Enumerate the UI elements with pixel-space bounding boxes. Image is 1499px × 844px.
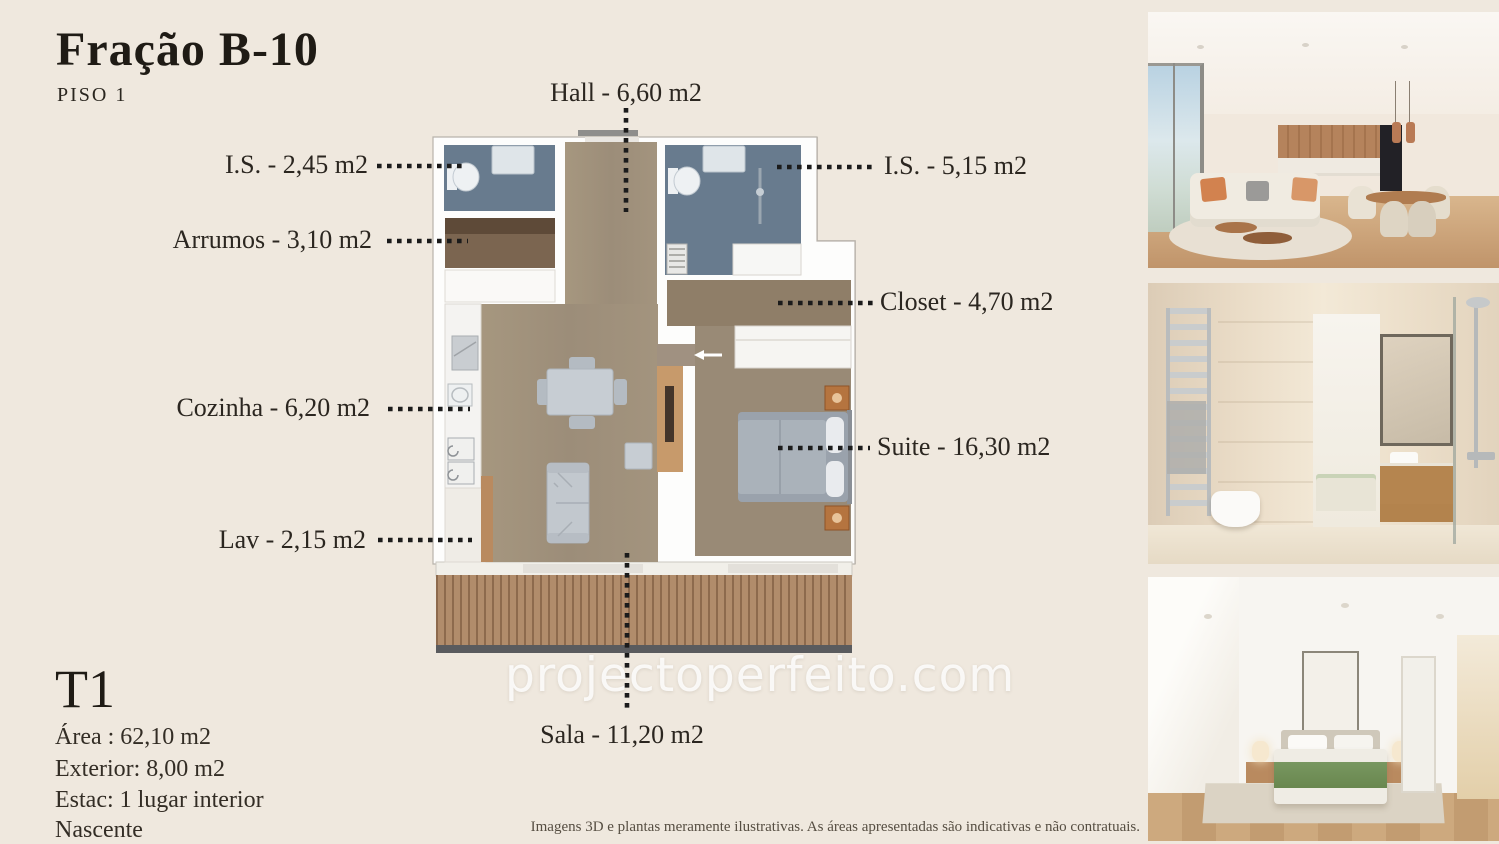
dining-chair [1408, 201, 1436, 237]
pendant-lamp [1392, 122, 1401, 142]
unit-exterior: Exterior: 8,00 m2 [55, 756, 225, 783]
room-closet-floor [667, 280, 851, 326]
ottoman [625, 443, 652, 469]
room-is-large [665, 145, 801, 275]
pendant-lamp [1406, 122, 1415, 142]
bedroom-glimpse [1316, 474, 1376, 511]
page-title: Fração B-10 [56, 22, 319, 77]
label-hall: Hall - 6,60 m2 [520, 80, 732, 106]
watermark: projectoperfeito.com [505, 648, 1005, 703]
dining-table [1366, 191, 1447, 204]
floor-plan [428, 128, 858, 658]
unit-parking: Estac: 1 lugar interior [55, 787, 264, 814]
balcony-deck [436, 562, 852, 653]
unit-area: Área : 62,10 m2 [55, 724, 211, 751]
dining-chair [1348, 186, 1376, 219]
pendant-cord [1395, 81, 1396, 125]
closet-wardrobe [735, 326, 851, 368]
label-cozinha: Cozinha - 6,20 m2 [130, 395, 370, 421]
shower-glass [1453, 297, 1456, 544]
shower-mixer [1467, 452, 1495, 460]
dining-chair [1380, 201, 1408, 237]
label-lav: Lav - 2,15 m2 [166, 527, 366, 553]
bathroom-floor [1148, 525, 1499, 564]
orange-pillow [1200, 177, 1227, 202]
unit-orientation: Nascente [55, 817, 143, 844]
pendant-cord [1409, 81, 1410, 125]
shower-column [1474, 305, 1478, 468]
green-blanket [1274, 762, 1386, 788]
orange-pillow [1291, 177, 1317, 202]
room-lav [445, 476, 493, 562]
table-lamp [1252, 741, 1270, 762]
toilet [1211, 491, 1260, 528]
label-arrumos: Arrumos - 3,10 m2 [132, 227, 372, 253]
label-suite: Suite - 16,30 m2 [877, 434, 1050, 460]
nightstand [1246, 762, 1274, 783]
bathroom-3d-render [1148, 283, 1499, 564]
living-room-3d-render [1148, 12, 1499, 268]
label-is-small: I.S. - 2,45 m2 [168, 152, 368, 178]
mirror [1380, 334, 1454, 446]
towel [1167, 401, 1206, 474]
tv-wall [657, 366, 683, 472]
label-sala: Sala - 11,20 m2 [516, 722, 728, 748]
room-is-small [444, 145, 555, 211]
bedroom-3d-render [1148, 577, 1499, 841]
wood-vanity [1380, 463, 1454, 522]
unit-typology: T1 [55, 658, 115, 720]
ensuite-opening [1457, 635, 1499, 799]
floor-subtitle: PISO 1 [57, 84, 127, 107]
window-frame [1173, 63, 1175, 232]
ceiling-spotlight [1436, 614, 1444, 619]
disclaimer: Imagens 3D e plantas meramente ilustrati… [430, 819, 1140, 836]
label-closet: Closet - 4,70 m2 [880, 289, 1053, 315]
room-arrumos [445, 218, 555, 302]
kitchen-cabinets [1278, 125, 1380, 158]
entrance-door [578, 130, 639, 142]
ceiling-spotlight [1302, 43, 1309, 47]
coffee-table [1243, 232, 1292, 244]
gray-pillow [1246, 181, 1269, 201]
wall-art [1302, 651, 1358, 735]
door [1401, 656, 1436, 793]
brochure-page: Fração B-10 PISO 1 [0, 0, 1499, 841]
label-is-large: I.S. - 5,15 m2 [884, 153, 1027, 179]
sofa [547, 463, 589, 543]
